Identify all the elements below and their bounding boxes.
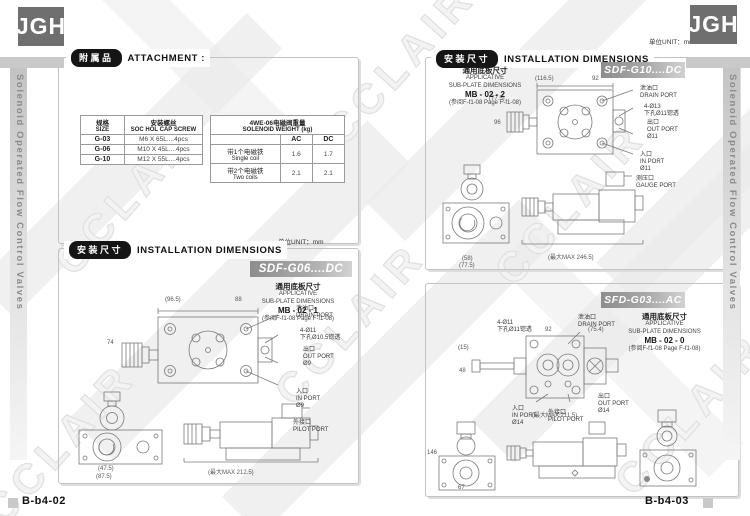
page-number: B-b4-02 <box>22 495 66 507</box>
dimension-label: 92 <box>545 327 552 333</box>
table-cell: 带2个电磁铁 Two coils <box>211 164 281 183</box>
table-cell: G-06 <box>81 145 125 155</box>
sfd-g03-side-view-drawing <box>505 420 630 486</box>
sidebar-title: Solenoid Operated Flow Control Valves <box>727 74 738 311</box>
sdf-g06-front-view-drawing <box>73 390 168 466</box>
dimension-label: (47.5) <box>98 466 114 472</box>
sidebar-cap-left <box>0 57 64 68</box>
catalog-spread: CCLAIR CCLAIR CCLAIR CCLAIR CCLAIR CCLAI… <box>0 0 750 516</box>
dimension-label: 48 <box>459 368 466 374</box>
footer-marker <box>8 498 18 508</box>
table-row: G-03 M6 X 65L....4pcs <box>81 135 203 145</box>
dimension-label: 92 <box>592 76 599 82</box>
sdf-g10-front-view-drawing <box>440 163 512 255</box>
port-label-drain: 泄油口 DRAIN PORT <box>640 86 677 100</box>
dimension-label: (77.5) <box>489 96 505 102</box>
table-cell: AC <box>280 135 312 145</box>
model-banner-sdf-g06: SDF-G06....DC <box>250 261 352 277</box>
port-label-bolt: 4-Ø11 下孔Ø11锪透 <box>497 320 532 334</box>
table-cell <box>211 135 281 145</box>
installation-title: INSTALLATION DIMENSIONS <box>137 245 282 256</box>
sidebar-cap-right <box>686 57 750 68</box>
table-cell: M10 X 45L....4pcs <box>124 145 202 155</box>
table-row: AC DC <box>211 135 345 145</box>
table-cell: G-10 <box>81 155 125 165</box>
page-number: B-b4-03 <box>645 495 689 507</box>
dimension-label: (58) <box>462 256 473 262</box>
dimension-label: 146 <box>427 450 437 456</box>
model-banner-sdf-g10: SDF-G10....DC <box>601 62 685 78</box>
port-label-out: 出口 OUT PORT Ø9 <box>303 347 334 369</box>
dimension-label: (96.5) <box>165 297 181 303</box>
table-row: 带1个电磁铁 Single coil 1.6 1.7 <box>211 145 345 164</box>
port-label-pilot: 外接口 PILOT PORT <box>293 420 328 434</box>
sfd-g03-end-view-drawing <box>636 408 702 488</box>
attachment-title: ATTACHMENT : <box>128 53 206 64</box>
port-label-in: 入口 IN PORT Ø11 <box>640 152 664 174</box>
table-cell: G-03 <box>81 135 125 145</box>
port-label-drain: 泄油口 DRAIN PORT <box>296 306 333 320</box>
subplate-info: 通用底板尺寸 APPLICATIVE SUB-PLATE DIMENSIONS … <box>597 312 732 354</box>
port-label-gauge: 测压口 GAUGE PORT <box>636 176 676 190</box>
solenoid-weight-table: 4WE-06电磁阀重量 SOLENOID WEIGHT (kg) AC DC 带… <box>210 115 345 183</box>
subplate-info: 通用底板尺寸 APPLICATIVE SUB-PLATE DIMENSIONS … <box>425 66 545 108</box>
table-cell: M12 X 55L....4pcs <box>124 155 202 165</box>
table-header: 规格 SIZE <box>81 116 125 135</box>
model-banner-sfd-g03: SFD-G03....AC <box>601 292 685 308</box>
dimension-label: 96 <box>494 120 501 126</box>
port-label-bolt: 4-Ø11 下孔Ø10.5锪透 <box>300 328 340 342</box>
attachment-badge: 附属品 <box>71 49 122 67</box>
dimension-label: 67 <box>458 485 465 491</box>
installation-header: 安装尺寸 INSTALLATION DIMENSIONS <box>64 241 287 259</box>
table-cell: 2.1 <box>280 164 312 183</box>
table-cell: 1.7 <box>312 145 344 164</box>
port-label-out: 出口 OUT PORT Ø11 <box>647 120 678 142</box>
table-row: G-10 M12 X 55L....4pcs <box>81 155 203 165</box>
port-label-out: 出口 OUT PORT Ø14 <box>598 394 629 416</box>
dimension-label: 74 <box>107 340 114 346</box>
port-label-bolt: 4-Ø13 下孔Ø11锪透 <box>644 104 679 118</box>
table-row: G-06 M10 X 45L....4pcs <box>81 145 203 155</box>
table-cell: 1.6 <box>280 145 312 164</box>
sfd-g03-front-view-drawing <box>433 420 503 492</box>
dimension-label: (15) <box>458 345 469 351</box>
sdf-g10-side-view-drawing <box>520 170 645 248</box>
table-cell: 带1个电磁铁 Single coil <box>211 145 281 164</box>
table-cell: DC <box>312 135 344 145</box>
port-label-in: 入口 IN PORT Ø9 <box>296 389 320 411</box>
dimension-label: 88 <box>235 297 242 303</box>
dimension-label: (最大MAX 246.5) <box>548 252 594 261</box>
screw-table: 规格 SIZE 安装螺丝 SOC HOL CAP SCREW G-03 M6 X… <box>80 115 203 165</box>
installation-badge: 安装尺寸 <box>69 241 131 259</box>
table-header: 安装螺丝 SOC HOL CAP SCREW <box>124 116 202 135</box>
brand-logo: JGH <box>18 7 64 46</box>
table-row: 带2个电磁铁 Two coils 2.1 2.1 <box>211 164 345 183</box>
attachment-header: 附属品 ATTACHMENT : <box>66 49 210 67</box>
dimension-label: (最大MAX 212.5) <box>208 467 254 476</box>
dimension-label: (75.4) <box>588 327 604 333</box>
dimension-label: (87.5) <box>96 474 112 480</box>
dimension-label: (最大MAX 211.5) <box>532 410 577 419</box>
table-title: 4WE-06电磁阀重量 SOLENOID WEIGHT (kg) <box>211 116 345 135</box>
footer-marker <box>703 498 713 508</box>
sidebar-title: Solenoid Operated Flow Control Valves <box>14 74 25 311</box>
table-cell: 2.1 <box>312 164 344 183</box>
dimension-label: (116.5) <box>535 76 554 82</box>
brand-logo: JGH <box>690 5 737 44</box>
dimension-label: (77.5) <box>459 263 475 269</box>
table-cell: M6 X 65L....4pcs <box>124 135 202 145</box>
